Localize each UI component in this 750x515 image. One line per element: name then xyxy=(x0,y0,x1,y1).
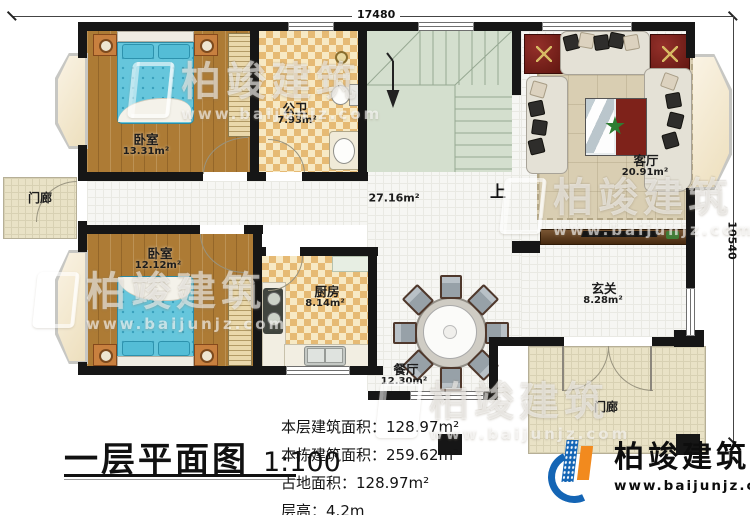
tv xyxy=(581,231,659,237)
pillow xyxy=(158,44,190,59)
wall xyxy=(348,366,383,375)
brand-url: www.baijunjz.com xyxy=(614,478,750,494)
title-underline-thin xyxy=(64,479,296,480)
title-underline xyxy=(64,474,296,477)
wall xyxy=(472,22,542,31)
room-area-bedroom-1: 13.31m² xyxy=(123,147,169,157)
wall xyxy=(368,391,410,400)
wall xyxy=(358,22,367,181)
wall xyxy=(489,337,564,346)
room-label-kitchen: 厨房 xyxy=(314,286,339,299)
entry-door-leaf xyxy=(562,346,564,391)
sofa-pillow xyxy=(623,34,640,51)
shower-head xyxy=(335,51,348,64)
entry-door-leaf xyxy=(650,346,652,391)
wall xyxy=(244,225,263,234)
window xyxy=(542,22,632,31)
sofa-pillow xyxy=(665,92,682,109)
wall-stub xyxy=(512,241,540,253)
wall xyxy=(332,22,418,31)
window xyxy=(286,366,350,375)
toilet xyxy=(331,85,350,105)
room-area-bathroom: 7.93m² xyxy=(277,116,316,126)
stats-block: 本层建筑面积：128.97m² 本栋建筑面积：259.62m² 占地面积：128… xyxy=(281,416,459,515)
pillow xyxy=(122,341,154,356)
stove-burner xyxy=(267,292,281,306)
wall xyxy=(368,256,377,366)
window xyxy=(288,22,334,31)
window xyxy=(418,22,474,31)
nightstand xyxy=(93,344,117,366)
pillow xyxy=(158,341,190,356)
bay-window-bedroom-2 xyxy=(55,250,88,364)
sofa-pillow xyxy=(578,32,595,49)
stat-floor-height: 层高：4.2m xyxy=(281,500,459,515)
room-label-foyer: 玄关 xyxy=(591,283,616,296)
window xyxy=(410,391,484,400)
room-area-living: 20.91m² xyxy=(622,168,668,178)
side-table xyxy=(524,34,564,74)
bathroom-sink xyxy=(333,138,355,164)
bed-headboard xyxy=(117,31,194,42)
stat-building-area: 本栋建筑面积：259.62m² xyxy=(281,444,459,465)
dimension-top-label: 17480 xyxy=(352,8,400,21)
room-label-porch-right: 门廊 xyxy=(594,401,618,413)
dimension-right-label: 10540 xyxy=(726,212,739,270)
plant-decor xyxy=(666,231,679,239)
wall xyxy=(78,22,87,58)
wardrobe xyxy=(228,276,252,366)
dining-chair xyxy=(440,275,462,299)
nightstand xyxy=(194,34,218,56)
wall xyxy=(512,22,521,95)
dining-chair xyxy=(393,322,417,344)
room-area-foyer: 8.28m² xyxy=(583,296,622,306)
wall xyxy=(78,172,203,181)
staircase xyxy=(367,31,512,172)
room-area-dining: 12.30m² xyxy=(381,377,427,387)
wall xyxy=(686,188,695,288)
wall xyxy=(78,225,200,234)
room-label-living: 客厅 xyxy=(633,155,658,168)
sink-basin xyxy=(325,348,343,363)
room-label-dining: 餐厅 xyxy=(393,364,418,377)
wall xyxy=(253,234,262,375)
sink-basin xyxy=(307,348,325,363)
wall xyxy=(250,22,259,181)
brand-logo-icon xyxy=(548,438,604,498)
pillow xyxy=(122,44,154,59)
stove-burner xyxy=(267,312,281,326)
wall xyxy=(686,22,695,58)
room-area-kitchen: 8.14m² xyxy=(305,299,344,309)
room-label-bedroom-1: 卧室 xyxy=(133,134,158,147)
bay-window-living-room xyxy=(690,54,732,190)
brand-name: 柏竣建筑 xyxy=(614,443,750,473)
dining-table-center xyxy=(443,325,457,339)
wardrobe xyxy=(228,33,252,137)
wall xyxy=(78,362,87,375)
sofa-pillow xyxy=(528,100,546,118)
stat-floor-area: 本层建筑面积：128.97m² xyxy=(281,416,459,437)
floor-plan-canvas: 卧室 13.31m² 公卫 7.93m² 27.16m² 上 客厅 20.91m… xyxy=(0,0,750,515)
nightstand xyxy=(93,34,117,56)
brand-logo: 柏竣建筑 www.baijunjz.com xyxy=(548,438,750,498)
room-label-bathroom: 公卫 xyxy=(282,103,307,116)
wall xyxy=(78,221,87,252)
kitchen-cabinet xyxy=(332,256,370,272)
exterior-mask xyxy=(498,346,521,391)
nightstand xyxy=(194,344,218,366)
room-label-bedroom-2: 卧室 xyxy=(147,248,172,261)
wall xyxy=(78,145,87,181)
dining-chair xyxy=(440,367,462,391)
room-label-porch-left: 门廊 xyxy=(28,192,52,204)
stat-footprint-area: 占地面积：128.97m² xyxy=(281,472,459,493)
stairs-up-label: 上 xyxy=(490,178,506,202)
bay-window-bedroom-1 xyxy=(55,53,88,149)
wall xyxy=(300,247,378,256)
room-area-bedroom-2: 12.12m² xyxy=(135,261,181,271)
wall xyxy=(489,346,498,400)
window xyxy=(686,288,695,336)
sofa-pillow xyxy=(531,119,548,136)
room-area-hall: 27.16m² xyxy=(368,193,419,204)
wall xyxy=(78,366,265,375)
